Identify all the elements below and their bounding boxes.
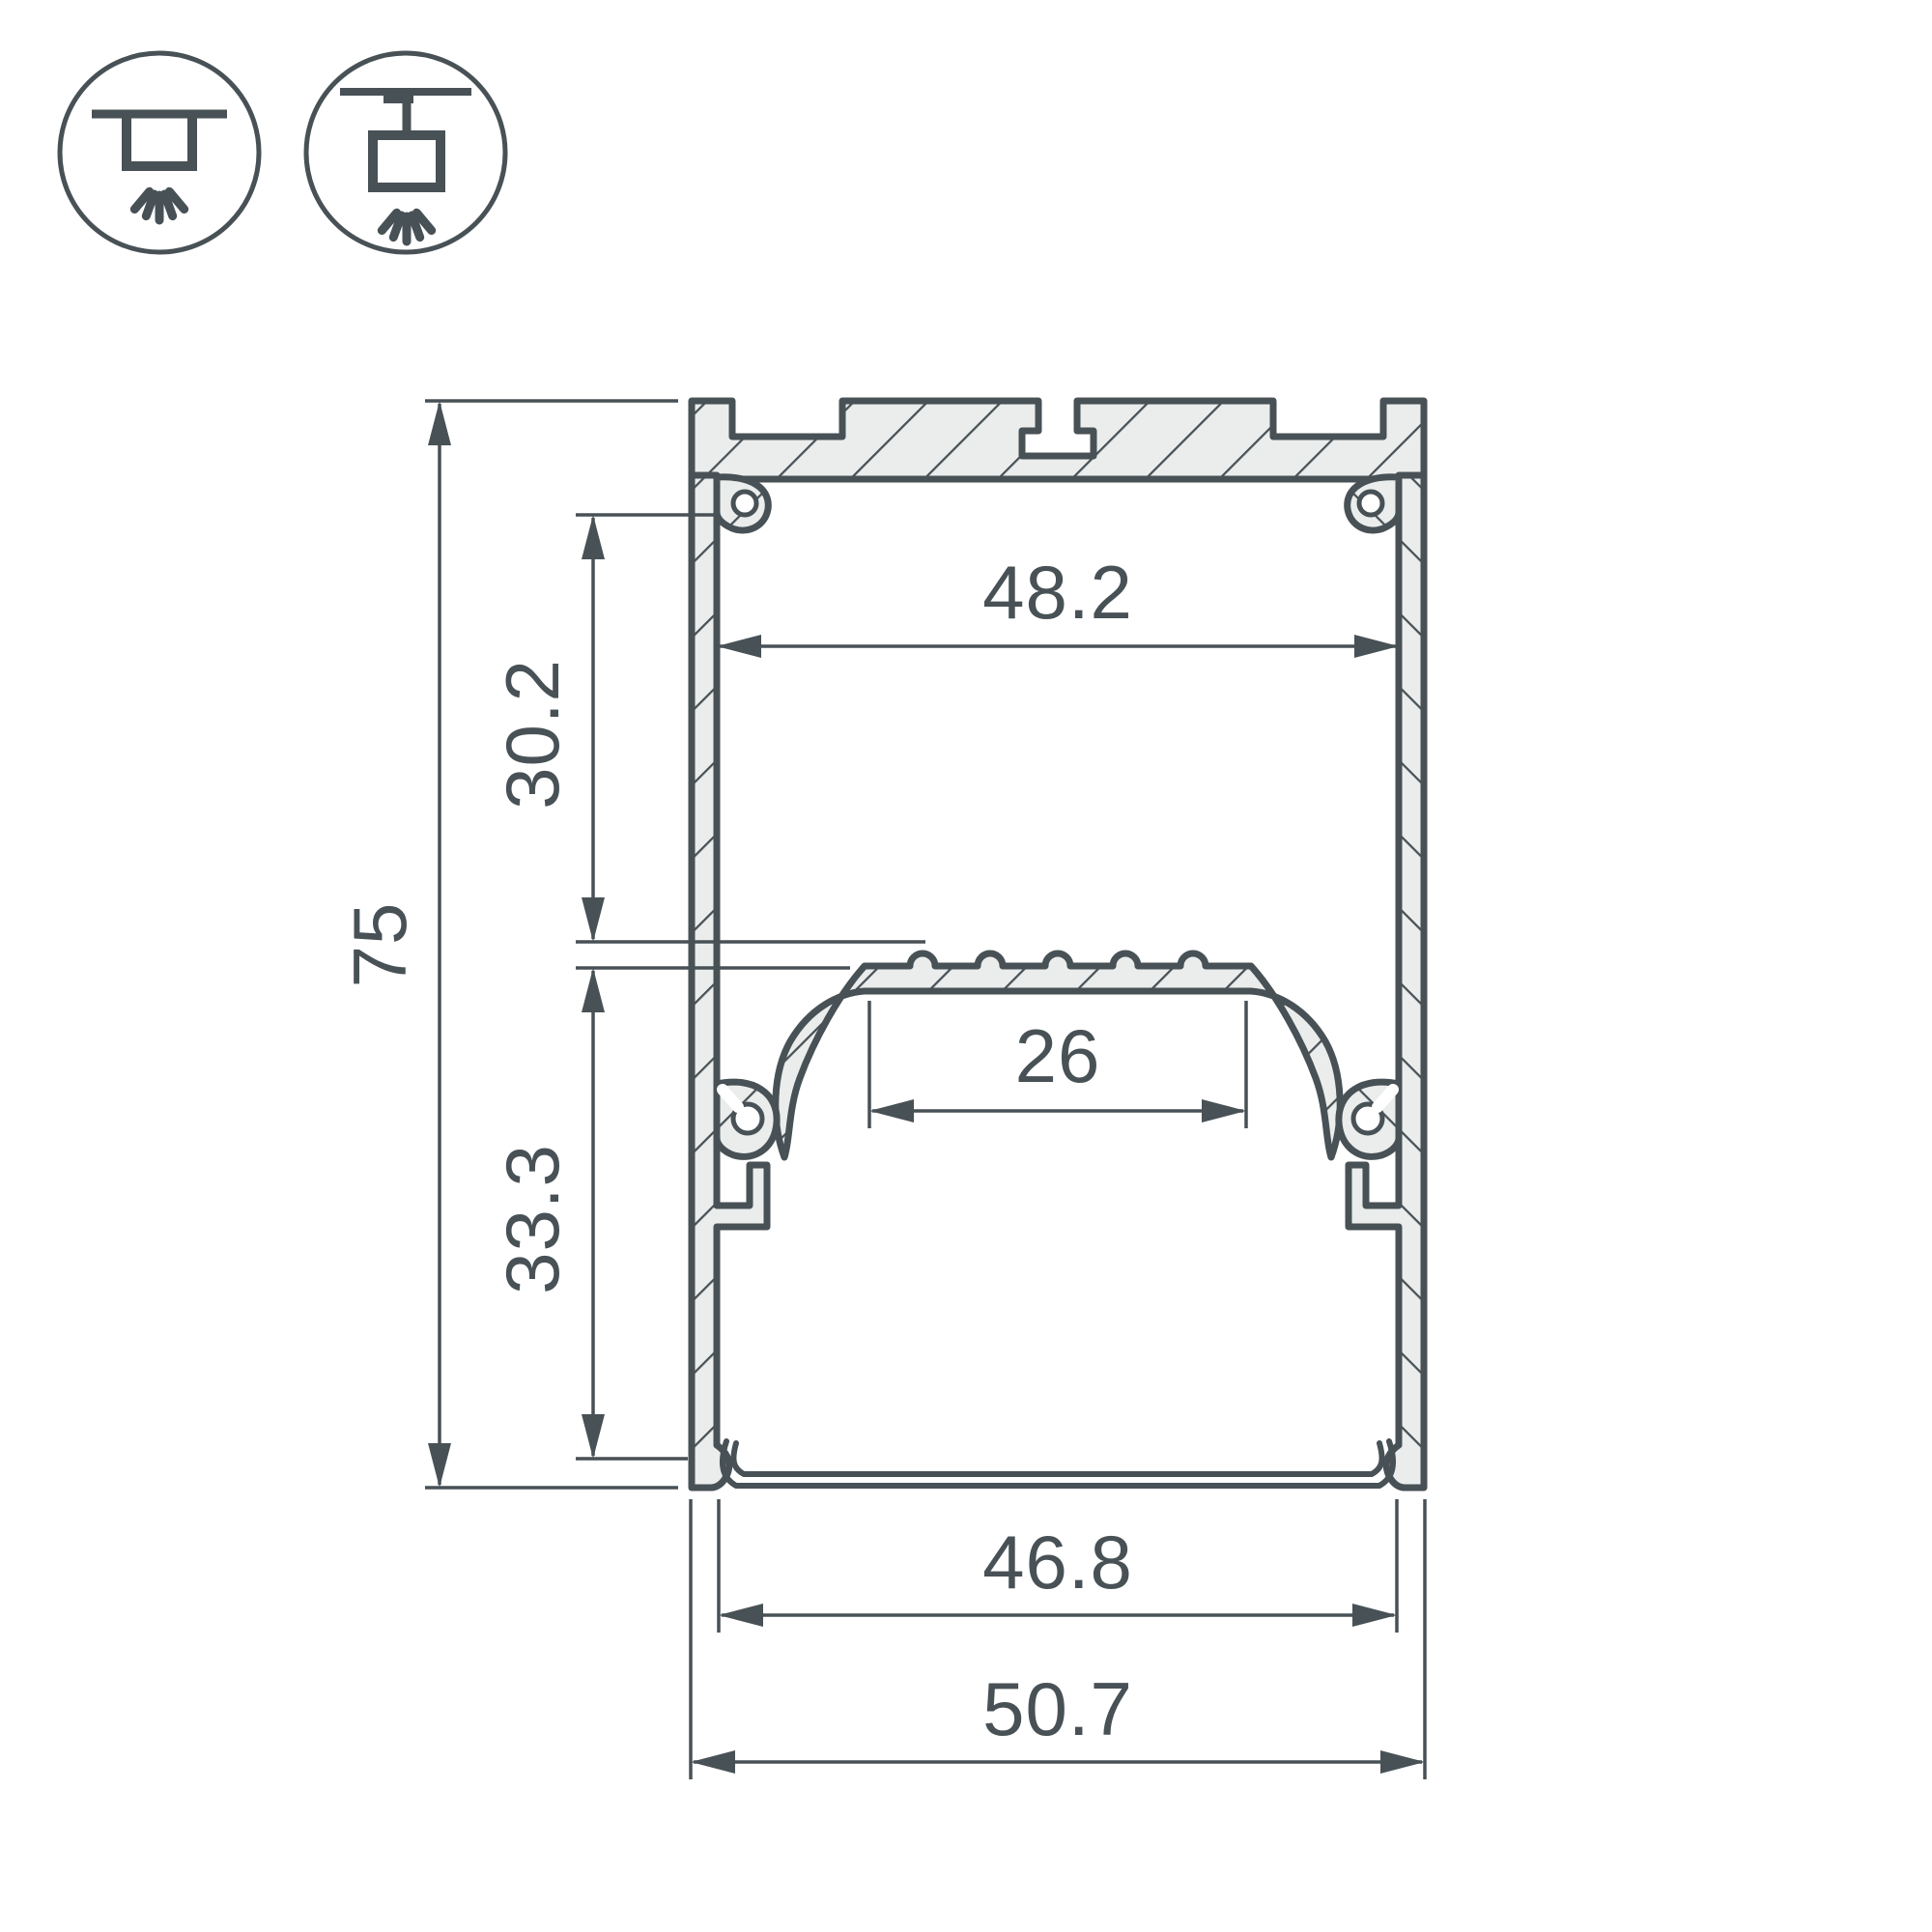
icon-pendant-mount (306, 53, 505, 252)
profile-top-section (692, 401, 1424, 479)
profile-right-wall (1349, 475, 1424, 1488)
dim-upper-cavity-height (576, 515, 925, 968)
dim-outer-height (425, 401, 678, 1488)
label-upper-cavity-height: 30.2 (490, 659, 575, 810)
dim-lower-cavity-height (576, 968, 688, 1459)
label-led-platform-width: 26 (1015, 1013, 1101, 1098)
pendant-suspension-mount-icon (340, 92, 471, 241)
profile-left-wall (692, 475, 767, 1488)
label-bottom-opening-width: 46.8 (982, 1520, 1133, 1605)
upper-screw-boss-right (1348, 477, 1399, 530)
ceiling-surface-mount-icon (92, 114, 227, 220)
diffuser-lens (723, 1441, 1393, 1486)
dim-upper-inner-width (717, 635, 1399, 658)
upper-screw-boss-left (717, 477, 768, 530)
lower-screw-boss-right (1339, 1082, 1399, 1156)
label-lower-cavity-height: 33.3 (490, 1144, 575, 1294)
drawing-page: 75 30.2 33.3 48.2 26 46.8 50.7 (0, 0, 1932, 1932)
dimension-lines (425, 401, 1425, 1779)
label-outer-height: 75 (337, 902, 422, 988)
profile-cross-section-drawing: 75 30.2 33.3 48.2 26 46.8 50.7 (0, 0, 1932, 1932)
icon-surface-mount (60, 53, 259, 252)
label-outer-width: 50.7 (982, 1666, 1133, 1751)
label-upper-inner-width: 48.2 (982, 550, 1133, 635)
lower-screw-boss-left (717, 1082, 777, 1156)
